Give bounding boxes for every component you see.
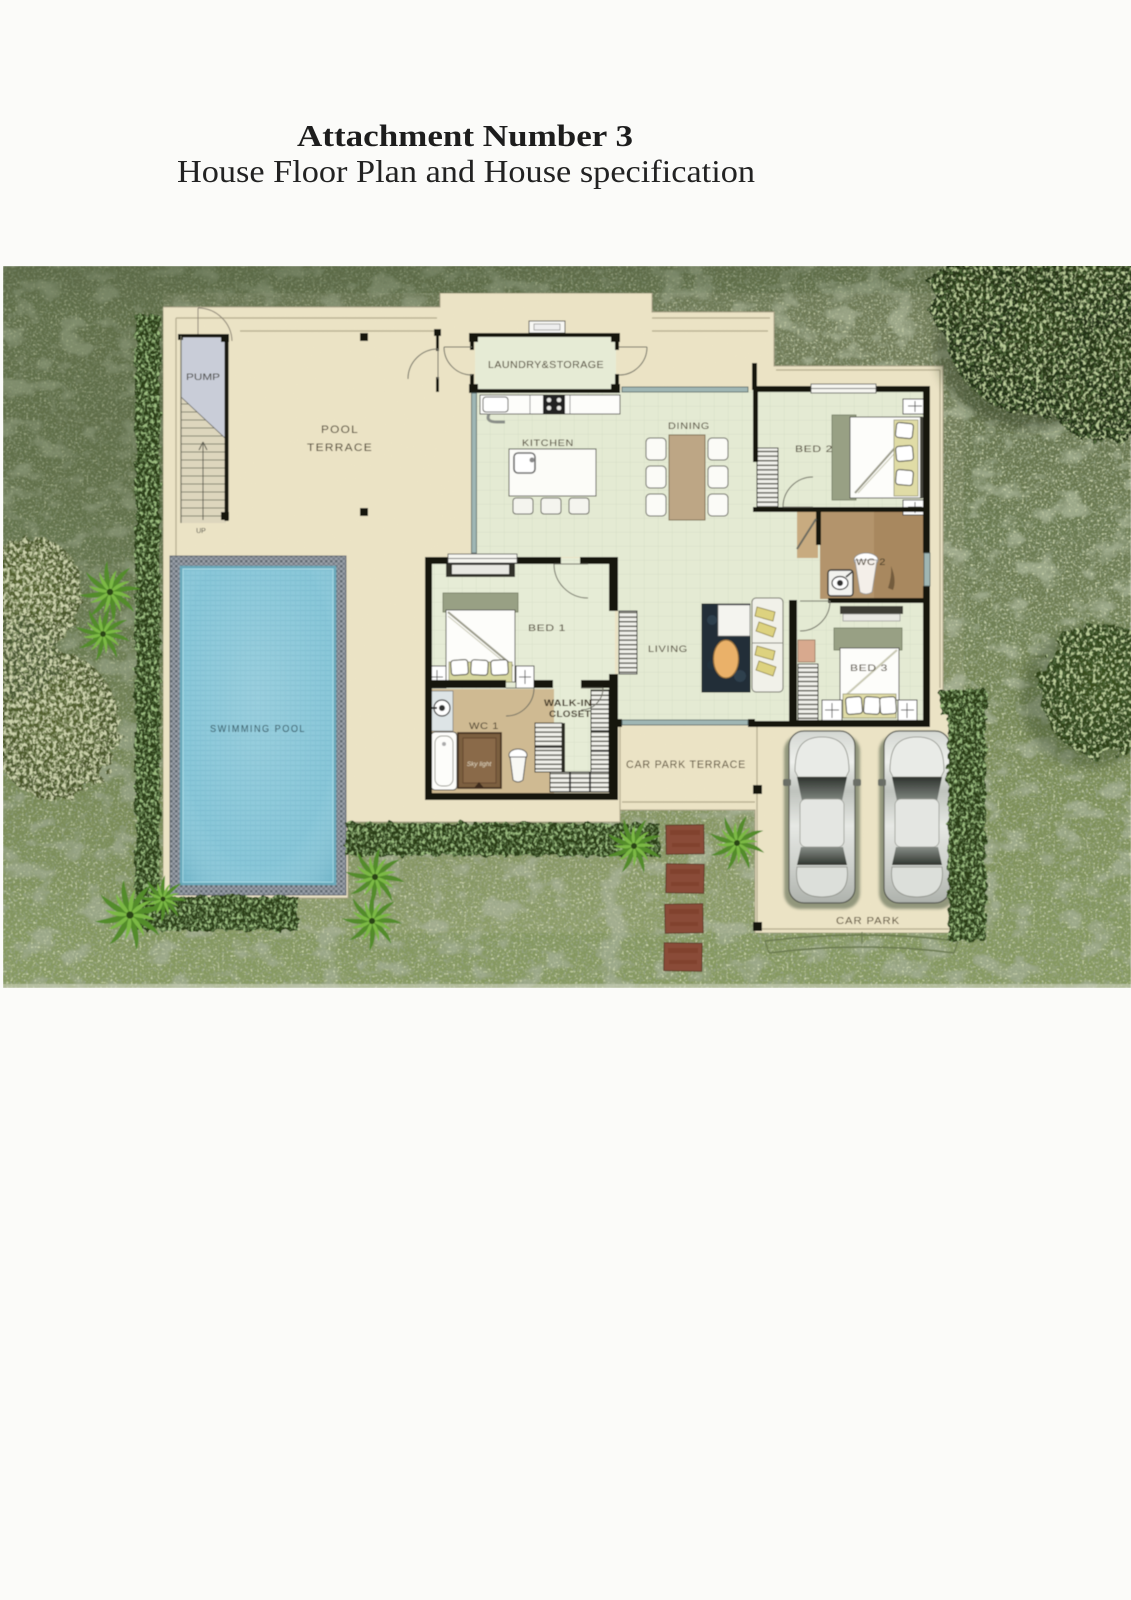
svg-text:SWIMMING POOL: SWIMMING POOL <box>210 724 306 735</box>
svg-text:WALK-IN: WALK-IN <box>544 698 592 708</box>
svg-text:CAR PARK: CAR PARK <box>836 915 900 927</box>
svg-text:KITCHEN: KITCHEN <box>522 438 574 449</box>
svg-text:Attachment Number 3: Attachment Number 3 <box>297 118 633 153</box>
svg-text:LIVING: LIVING <box>648 644 688 655</box>
svg-text:WC 2: WC 2 <box>856 557 886 568</box>
svg-text:PUMP: PUMP <box>186 372 220 383</box>
svg-text:House Floor Plan and House spe: House Floor Plan and House specification <box>177 153 755 189</box>
svg-text:CLOSET: CLOSET <box>549 709 591 719</box>
svg-text:BED 3: BED 3 <box>850 663 888 674</box>
svg-text:LAUNDRY&STORAGE: LAUNDRY&STORAGE <box>488 360 604 371</box>
svg-text:POOL: POOL <box>321 424 359 436</box>
svg-text:Sky light: Sky light <box>467 761 493 768</box>
svg-text:UP: UP <box>196 528 206 535</box>
svg-text:BED 1: BED 1 <box>528 623 566 634</box>
svg-text:BED 2: BED 2 <box>795 444 833 455</box>
svg-text:WC 1: WC 1 <box>469 721 499 732</box>
svg-text:DINING: DINING <box>668 421 710 432</box>
svg-text:CAR PARK TERRACE: CAR PARK TERRACE <box>626 759 746 771</box>
svg-text:TERRACE: TERRACE <box>307 442 373 454</box>
